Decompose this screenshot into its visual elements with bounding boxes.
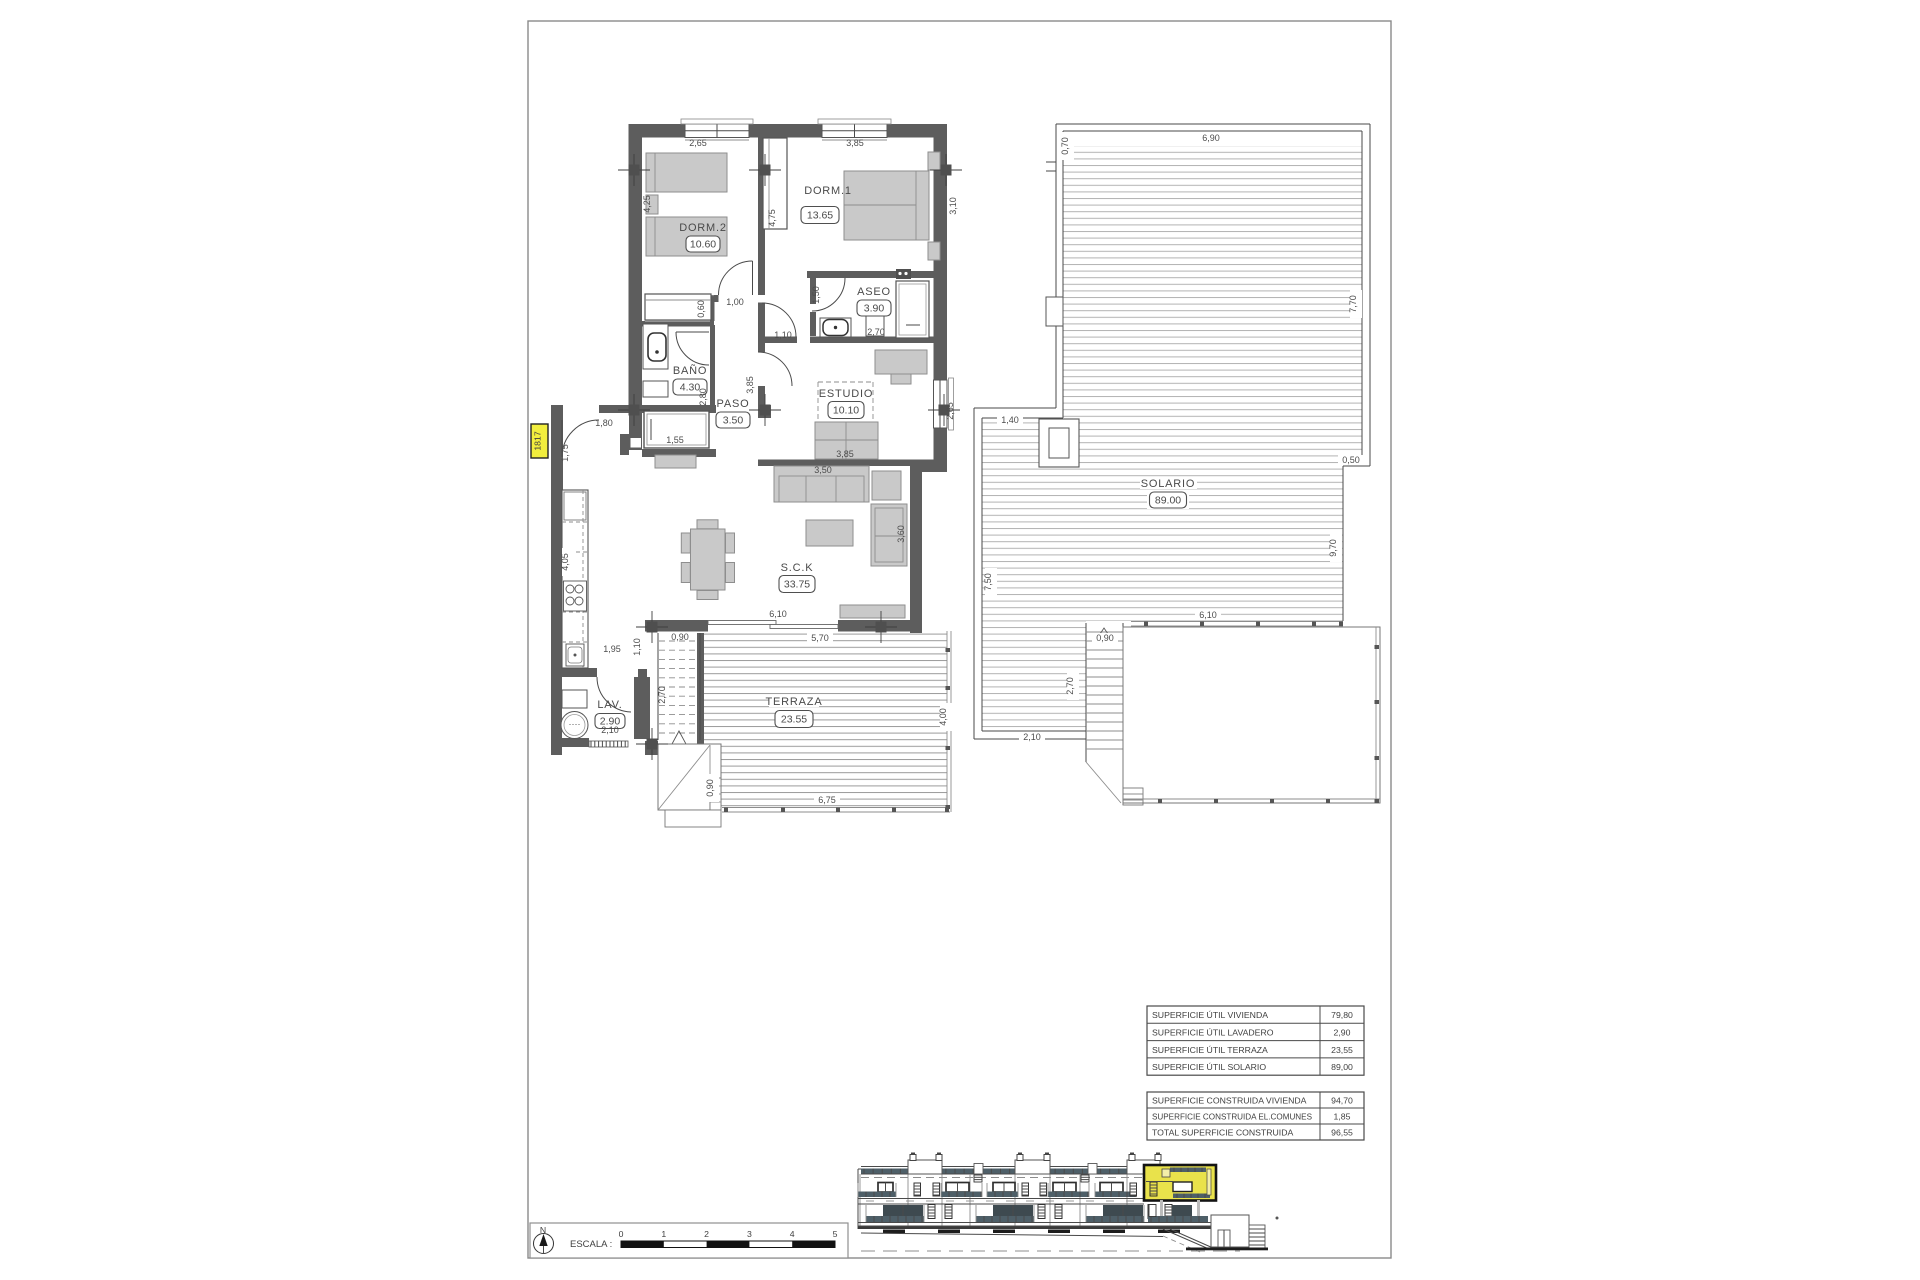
svg-text:1,10: 1,10: [774, 330, 792, 340]
svg-text:ESTUDIO: ESTUDIO: [819, 388, 874, 400]
svg-text:1,00: 1,00: [726, 297, 744, 307]
svg-text:PASO: PASO: [717, 398, 750, 410]
svg-text:SUPERFICIE ÚTIL SOLARIO: SUPERFICIE ÚTIL SOLARIO: [1152, 1062, 1266, 1072]
svg-text:2,70: 2,70: [1065, 677, 1075, 695]
svg-text:4,25: 4,25: [642, 195, 652, 213]
svg-text:2,80: 2,80: [698, 388, 708, 406]
svg-text:DORM.1: DORM.1: [804, 185, 852, 197]
svg-text:TERRAZA: TERRAZA: [766, 696, 823, 708]
svg-text:79,80: 79,80: [1331, 1010, 1353, 1020]
svg-text:4: 4: [790, 1229, 795, 1239]
svg-text:3.50: 3.50: [723, 415, 744, 427]
svg-text:2,90: 2,90: [1334, 1027, 1351, 1037]
svg-text:0,90: 0,90: [671, 632, 689, 642]
svg-text:0,50: 0,50: [1342, 455, 1360, 465]
svg-text:9,70: 9,70: [1328, 539, 1338, 557]
svg-text:3,60: 3,60: [896, 525, 906, 543]
svg-text:1,40: 1,40: [1001, 415, 1019, 425]
svg-text:1,75: 1,75: [560, 444, 570, 462]
svg-text:2: 2: [704, 1229, 709, 1239]
svg-text:1,95: 1,95: [603, 644, 621, 654]
svg-text:10.60: 10.60: [690, 239, 716, 251]
svg-text:1,55: 1,55: [666, 435, 684, 445]
svg-text:2,70: 2,70: [657, 686, 667, 704]
svg-text:SUPERFICIE ÚTIL VIVIENDA: SUPERFICIE ÚTIL VIVIENDA: [1152, 1010, 1268, 1020]
svg-text:····: ····: [569, 719, 581, 729]
svg-text:10.10: 10.10: [833, 405, 859, 417]
svg-text:2,65: 2,65: [689, 138, 707, 148]
svg-text:23,55: 23,55: [1331, 1045, 1353, 1055]
svg-text:5,70: 5,70: [811, 633, 829, 643]
svg-text:94,70: 94,70: [1331, 1096, 1353, 1106]
svg-text:TOTAL SUPERFICIE CONSTRUIDA: TOTAL SUPERFICIE CONSTRUIDA: [1152, 1128, 1293, 1138]
svg-text:0,70: 0,70: [1060, 137, 1070, 155]
svg-text:0,60: 0,60: [696, 300, 706, 318]
svg-text:23.55: 23.55: [781, 714, 807, 726]
svg-text:1,10: 1,10: [632, 638, 642, 656]
svg-text:3,50: 3,50: [814, 465, 832, 475]
svg-text:1817: 1817: [533, 431, 543, 450]
svg-text:DORM.2: DORM.2: [679, 222, 727, 234]
svg-text:0,90: 0,90: [705, 779, 715, 797]
svg-text:BAÑO: BAÑO: [673, 364, 707, 377]
svg-text:7,70: 7,70: [1348, 295, 1358, 313]
svg-text:ASEO: ASEO: [857, 286, 891, 298]
svg-text:6,10: 6,10: [769, 609, 787, 619]
svg-text:0: 0: [619, 1229, 624, 1239]
svg-text:3,10: 3,10: [948, 197, 958, 215]
svg-text:89.00: 89.00: [1155, 495, 1181, 507]
svg-text:3,85: 3,85: [846, 138, 864, 148]
svg-text:SUPERFICIE ÚTIL TERRAZA: SUPERFICIE ÚTIL TERRAZA: [1152, 1045, 1268, 1055]
svg-text:LAV.: LAV.: [597, 699, 622, 711]
svg-text:3,85: 3,85: [745, 376, 755, 394]
svg-text:2,70: 2,70: [867, 327, 885, 337]
svg-text:96,55: 96,55: [1331, 1128, 1353, 1138]
svg-text:S.C.K: S.C.K: [781, 562, 814, 574]
svg-text:4,05: 4,05: [560, 553, 570, 571]
svg-text:SUPERFICIE CONSTRUIDA VIVIENDA: SUPERFICIE CONSTRUIDA VIVIENDA: [1152, 1096, 1307, 1106]
svg-text:13.65: 13.65: [807, 210, 833, 222]
svg-text:3,85: 3,85: [836, 449, 854, 459]
svg-text:33.75: 33.75: [784, 579, 810, 591]
svg-text:4,00: 4,00: [938, 708, 948, 726]
svg-text:3: 3: [747, 1229, 752, 1239]
svg-text:SUPERFICIE ÚTIL LAVADERO: SUPERFICIE ÚTIL LAVADERO: [1152, 1027, 1274, 1037]
svg-text:1: 1: [661, 1229, 666, 1239]
svg-text:2,10: 2,10: [1023, 732, 1041, 742]
svg-text:SOLARIO: SOLARIO: [1141, 478, 1196, 490]
svg-text:1,50: 1,50: [811, 286, 821, 304]
svg-text:4,75: 4,75: [767, 209, 777, 227]
svg-text:SUPERFICIE CONSTRUIDA EL.COMUN: SUPERFICIE CONSTRUIDA EL.COMUNES: [1152, 1112, 1312, 1122]
svg-text:6,10: 6,10: [1199, 610, 1217, 620]
svg-text:1,85: 1,85: [1334, 1112, 1351, 1122]
svg-text:0,90: 0,90: [1096, 633, 1114, 643]
svg-text:6,90: 6,90: [1202, 133, 1220, 143]
svg-text:5: 5: [833, 1229, 838, 1239]
svg-text:1,80: 1,80: [595, 418, 613, 428]
svg-text:6,75: 6,75: [818, 795, 836, 805]
svg-text:2,10: 2,10: [601, 725, 619, 735]
svg-text:ESCALA :: ESCALA :: [570, 1239, 612, 1250]
svg-text:3.90: 3.90: [864, 303, 885, 315]
svg-text:7,50: 7,50: [983, 573, 993, 591]
svg-text:89,00: 89,00: [1331, 1062, 1353, 1072]
svg-text:2,65: 2,65: [945, 402, 955, 420]
